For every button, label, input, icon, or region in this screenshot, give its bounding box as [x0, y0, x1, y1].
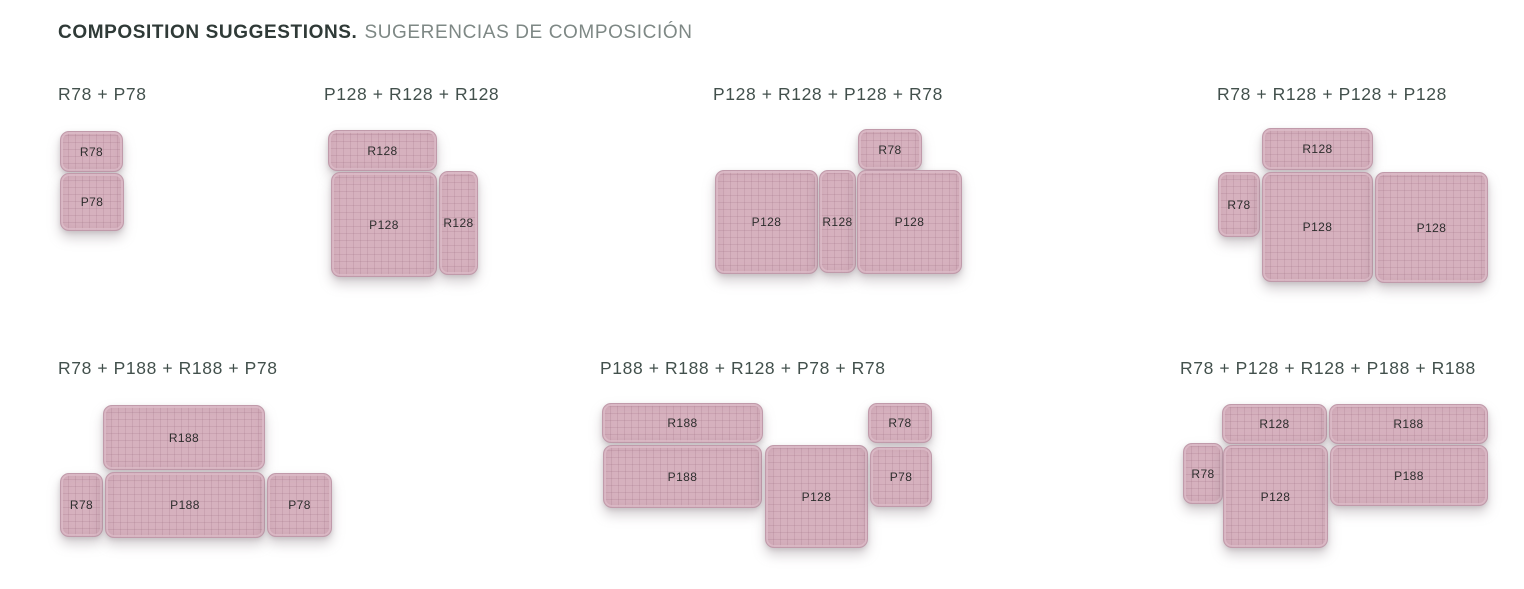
module-p78: P78 [870, 447, 932, 507]
module-p78: P78 [267, 473, 332, 537]
module-p128: P128 [715, 170, 818, 274]
module-label: P128 [1417, 221, 1447, 235]
composition-heading: R78 + P188 + R188 + P78 [58, 358, 278, 379]
module-label: R78 [80, 145, 103, 159]
module-label: R188 [169, 431, 199, 445]
module-p188: P188 [603, 445, 762, 508]
module-r78: R78 [60, 473, 103, 537]
composition-heading: P188 + R188 + R128 + P78 + R78 [600, 358, 886, 379]
module-label: P128 [1303, 220, 1333, 234]
module-r128: R128 [1262, 128, 1373, 170]
module-label: R128 [822, 215, 852, 229]
module-r78: R78 [1218, 172, 1260, 237]
module-label: P128 [802, 490, 832, 504]
catalog-page: COMPOSITION SUGGESTIONS.SUGERENCIAS DE C… [0, 0, 1524, 589]
module-label: R78 [878, 143, 901, 157]
module-label: P78 [81, 195, 104, 209]
page-title: COMPOSITION SUGGESTIONS.SUGERENCIAS DE C… [58, 22, 693, 44]
composition-heading: R78 + P78 [58, 84, 147, 105]
module-r78: R78 [60, 131, 123, 172]
module-r78: R78 [1183, 443, 1223, 504]
module-label: P128 [369, 218, 399, 232]
module-r78: R78 [868, 403, 932, 443]
module-label: R128 [1259, 417, 1289, 431]
composition-heading: P128 + R128 + P128 + R78 [713, 84, 943, 105]
module-label: P188 [170, 498, 200, 512]
module-p188: P188 [105, 472, 265, 538]
module-p128: P128 [331, 172, 437, 277]
module-label: R78 [70, 498, 93, 512]
module-r128: R128 [819, 170, 856, 273]
module-label: P78 [288, 498, 311, 512]
module-label: P128 [752, 215, 782, 229]
module-label: P188 [1394, 469, 1424, 483]
module-r128: R128 [1222, 404, 1327, 444]
module-r188: R188 [602, 403, 763, 443]
module-r128: R128 [439, 171, 478, 275]
module-p128: P128 [1223, 445, 1328, 548]
module-label: R188 [667, 416, 697, 430]
module-label: R128 [367, 144, 397, 158]
module-label: P128 [895, 215, 925, 229]
module-label: R78 [1227, 198, 1250, 212]
module-label: R78 [888, 416, 911, 430]
module-p128: P128 [857, 170, 962, 274]
module-p128: P128 [1262, 172, 1373, 282]
module-label: R78 [1191, 467, 1214, 481]
module-r188: R188 [103, 405, 265, 470]
module-p128: P128 [765, 445, 868, 548]
module-label: R128 [443, 216, 473, 230]
module-r188: R188 [1329, 404, 1488, 444]
composition-heading: R78 + P128 + R128 + P188 + R188 [1180, 358, 1476, 379]
module-label: R188 [1393, 417, 1423, 431]
composition-heading: P128 + R128 + R128 [324, 84, 499, 105]
module-p128: P128 [1375, 172, 1488, 283]
composition-heading: R78 + R128 + P128 + P128 [1217, 84, 1447, 105]
module-label: R128 [1302, 142, 1332, 156]
module-r78: R78 [858, 129, 922, 170]
module-label: P128 [1261, 490, 1291, 504]
page-title-spanish: SUGERENCIAS DE COMPOSICIÓN [364, 22, 692, 43]
module-p188: P188 [1330, 445, 1488, 506]
module-p78: P78 [60, 173, 124, 231]
page-title-english: COMPOSITION SUGGESTIONS. [58, 22, 357, 43]
module-label: P78 [890, 470, 913, 484]
module-r128: R128 [328, 130, 437, 171]
module-label: P188 [668, 470, 698, 484]
